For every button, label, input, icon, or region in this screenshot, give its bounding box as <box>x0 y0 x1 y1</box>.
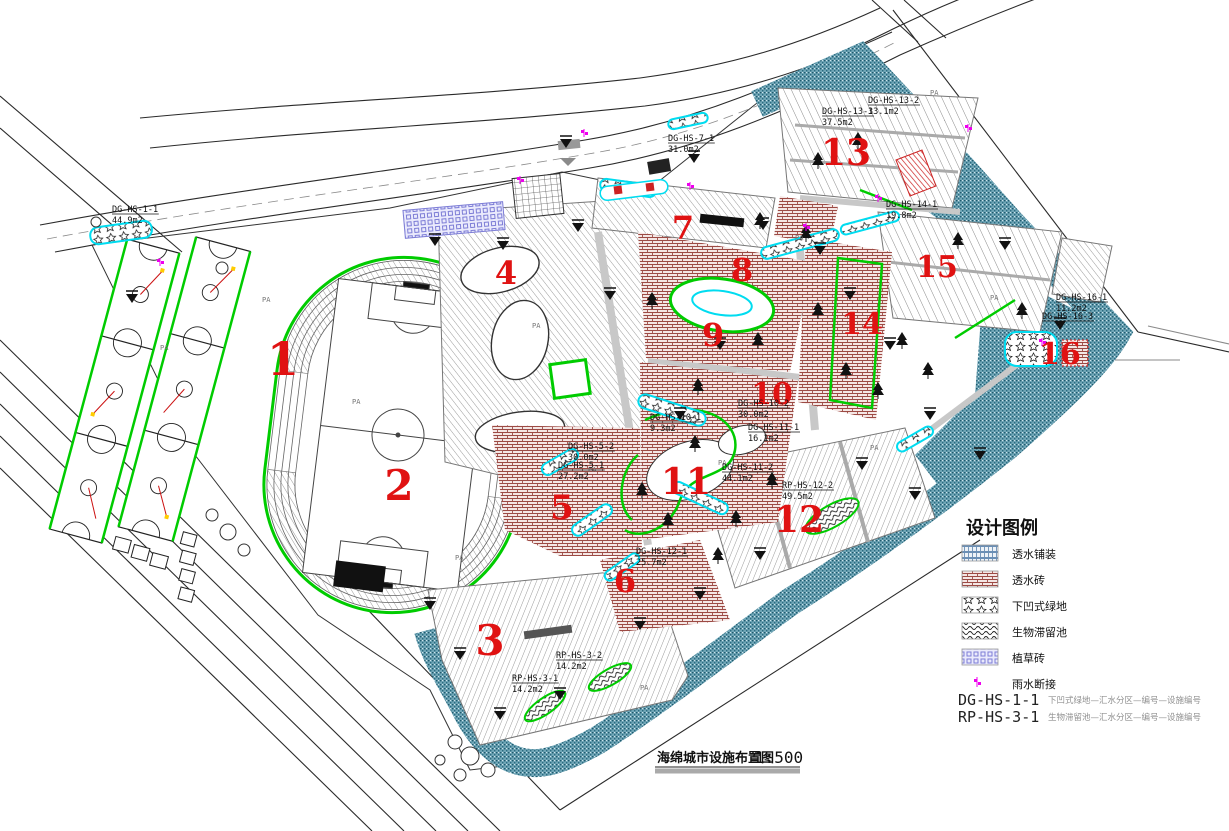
zone-number-16: 16 <box>1039 337 1081 372</box>
legend-rain-disconnect <box>974 677 981 687</box>
facility-code: DG-HS-11-2 <box>722 463 773 473</box>
facility-area: 9.3m2 <box>650 424 676 434</box>
facility-label: DG-HS-11-116.1m2 <box>748 423 800 444</box>
pa-marker: PA <box>990 294 999 302</box>
facility-code: DG-HS-5-2 <box>568 442 614 452</box>
flow-arrow-icon <box>924 411 936 420</box>
title-block: 海绵城市设施布置图 1:500 <box>655 748 803 771</box>
flow-arrow-icon <box>688 154 700 163</box>
rain-disconnect-dot <box>691 185 694 188</box>
legend-codes: DG-HS-1-1下凹式绿地—汇水分区—编号—设施编号RP-HS-3-1生物滞留… <box>958 691 1201 726</box>
zone-number-15: 15 <box>916 250 958 285</box>
legend-code: DG-HS-1-1 <box>958 691 1039 709</box>
facility-area: 44.1m2 <box>722 474 753 484</box>
facility-area: 44.9m2 <box>112 216 143 226</box>
zone-number-4: 4 <box>495 254 517 292</box>
facility-code: DG-HS-10-2 <box>738 399 789 409</box>
facility-code: DG-HS-14-1 <box>886 200 937 210</box>
zone-number-9: 9 <box>702 316 724 354</box>
zone-number-3: 3 <box>475 616 504 665</box>
building-4-skylight <box>550 360 590 399</box>
pa-marker: PA <box>352 398 361 406</box>
tree-icon <box>896 332 908 345</box>
road-line-east <box>1138 332 1229 352</box>
site-plan-drawing: PAPAPAPAPAPAPAPAPAPAPAPA 123456789101112… <box>0 0 1229 831</box>
rain-disconnect-dot <box>879 197 882 200</box>
facility-area: 37.5m2 <box>822 118 853 128</box>
sunken-green-strip <box>667 112 708 130</box>
facility-code: DG-HS-7-1 <box>668 134 714 144</box>
facility-label: DG-HS-1-144.9m2 <box>112 205 159 226</box>
facility-code: DG-HS-13-2 <box>868 96 919 106</box>
cad-canvas: PAPAPAPAPAPAPAPAPAPAPAPA 123456789101112… <box>0 0 1229 831</box>
design-legend: 设计图例 透水铺装透水砖下凹式绿地生物滞留池植草砖雨水断接 DG-HS-1-1下… <box>958 517 1201 726</box>
tree-icon <box>712 547 724 560</box>
legend-label: 生物滞留池 <box>1012 625 1067 639</box>
facility-code: DG-HS-1-1 <box>112 205 158 215</box>
legend-sunken-green <box>962 597 998 613</box>
pa-marker: PA <box>160 344 169 352</box>
facility-code: DG-HS-13-1 <box>822 107 873 117</box>
facility-code: RP-HS-3-2 <box>556 651 602 661</box>
facility-code: DG-HS-10-1 <box>650 413 701 423</box>
pa-marker: PA <box>455 554 464 562</box>
legend-grass-paver <box>962 649 998 665</box>
rain-disconnect-dot <box>969 127 972 130</box>
zone-number-12: 12 <box>774 499 824 541</box>
facility-area: 25.7m2 <box>636 558 667 568</box>
facility-area: 14.2m2 <box>556 662 587 672</box>
bus-shelter <box>647 158 671 175</box>
facility-code: DG-HS-16-1 <box>1056 293 1107 303</box>
legend-code-desc: 生物滞留池—汇水分区—编号—设施编号 <box>1048 712 1201 723</box>
pa-marker: PA <box>640 684 649 692</box>
legend-permeable-brick <box>962 571 998 587</box>
parking-13 <box>778 88 978 208</box>
facility-area: 33.1m2 <box>868 107 899 117</box>
legend-row: 生物滞留池 <box>962 623 1067 639</box>
legend-title: 设计图例 <box>966 517 1038 539</box>
zone-number-2: 2 <box>384 461 413 510</box>
road-line-topleft <box>0 96 182 252</box>
legend-label: 雨水断接 <box>1012 677 1056 691</box>
facility-code: DG-HS-12-1 <box>636 547 687 557</box>
facility-area: 19.8m2 <box>886 211 917 221</box>
rain-disconnect-dot <box>585 132 588 135</box>
zone-number-11: 11 <box>661 461 711 503</box>
facility-label: DG-HS-7-131.0m2 <box>668 134 715 155</box>
roadside-red-stall <box>614 186 623 195</box>
legend-row: 雨水断接 <box>974 677 1056 691</box>
facility-area: 30.0m2 <box>738 410 769 420</box>
facility-area: 31.0m2 <box>668 145 699 155</box>
flow-arrow-icon <box>884 341 896 350</box>
facility-area: 27.2m2 <box>558 472 589 482</box>
facility-code: RP-HS-12-2 <box>782 481 833 491</box>
zone-number-14: 14 <box>841 307 883 342</box>
legend-rows: 透水铺装透水砖下凹式绿地生物滞留池植草砖雨水断接 <box>962 545 1067 691</box>
facility-label: DG-HS-16-3 <box>1042 312 1094 322</box>
rain-disconnect-icon <box>581 129 588 137</box>
facility-code: DG-HS-5-1 <box>558 461 604 471</box>
drawing-scale: 1:500 <box>755 748 803 767</box>
zone-number-7: 7 <box>672 209 694 247</box>
legend-label: 植草砖 <box>1012 651 1045 665</box>
rain-disconnect-dot <box>807 226 810 229</box>
zone-number-13: 13 <box>821 132 871 174</box>
rain-disconnect-dot <box>978 682 981 685</box>
road-marking-arrow <box>560 158 576 166</box>
roadside-red-stall <box>646 183 655 192</box>
legend-row: 下凹式绿地 <box>962 597 1067 613</box>
legend-row: 透水砖 <box>962 571 1045 587</box>
zone-number-5: 5 <box>550 488 574 528</box>
facility-code: RP-HS-3-1 <box>512 674 558 684</box>
legend-row: 植草砖 <box>962 649 1045 665</box>
legend-code-row: RP-HS-3-1生物滞留池—汇水分区—编号—设施编号 <box>958 708 1201 726</box>
tree-icon <box>922 362 934 375</box>
pa-marker: PA <box>795 234 804 242</box>
legend-label: 下凹式绿地 <box>1012 599 1067 613</box>
facility-area: 14.2m2 <box>512 685 543 695</box>
pa-marker: PA <box>930 89 939 97</box>
pa-marker: PA <box>870 444 879 452</box>
facility-code: DG-HS-11-1 <box>748 423 799 433</box>
legend-code-row: DG-HS-1-1下凹式绿地—汇水分区—编号—设施编号 <box>958 691 1201 709</box>
pa-marker: PA <box>262 296 271 304</box>
legend-code: RP-HS-3-1 <box>958 708 1039 726</box>
legend-label: 透水砖 <box>1012 573 1045 587</box>
zone-number-6: 6 <box>614 562 636 600</box>
facility-code: DG-HS-16-3 <box>1042 312 1093 322</box>
legend-code-desc: 下凹式绿地—汇水分区—编号—设施编号 <box>1048 695 1201 706</box>
legend-permeable-paving <box>962 545 998 561</box>
rain-disconnect-dot <box>521 179 524 182</box>
facility-area: 16.1m2 <box>748 434 779 444</box>
road-line-east <box>1148 326 1229 344</box>
zone-number-8: 8 <box>731 251 753 289</box>
facility-area: 49.5m2 <box>782 492 813 502</box>
legend-bioretention <box>962 623 998 639</box>
legend-row: 透水铺装 <box>962 545 1056 561</box>
legend-label: 透水铺装 <box>1012 548 1056 561</box>
pa-marker: PA <box>532 322 541 330</box>
zone-number-1: 1 <box>267 332 299 386</box>
rain-disconnect-dot <box>161 261 164 264</box>
